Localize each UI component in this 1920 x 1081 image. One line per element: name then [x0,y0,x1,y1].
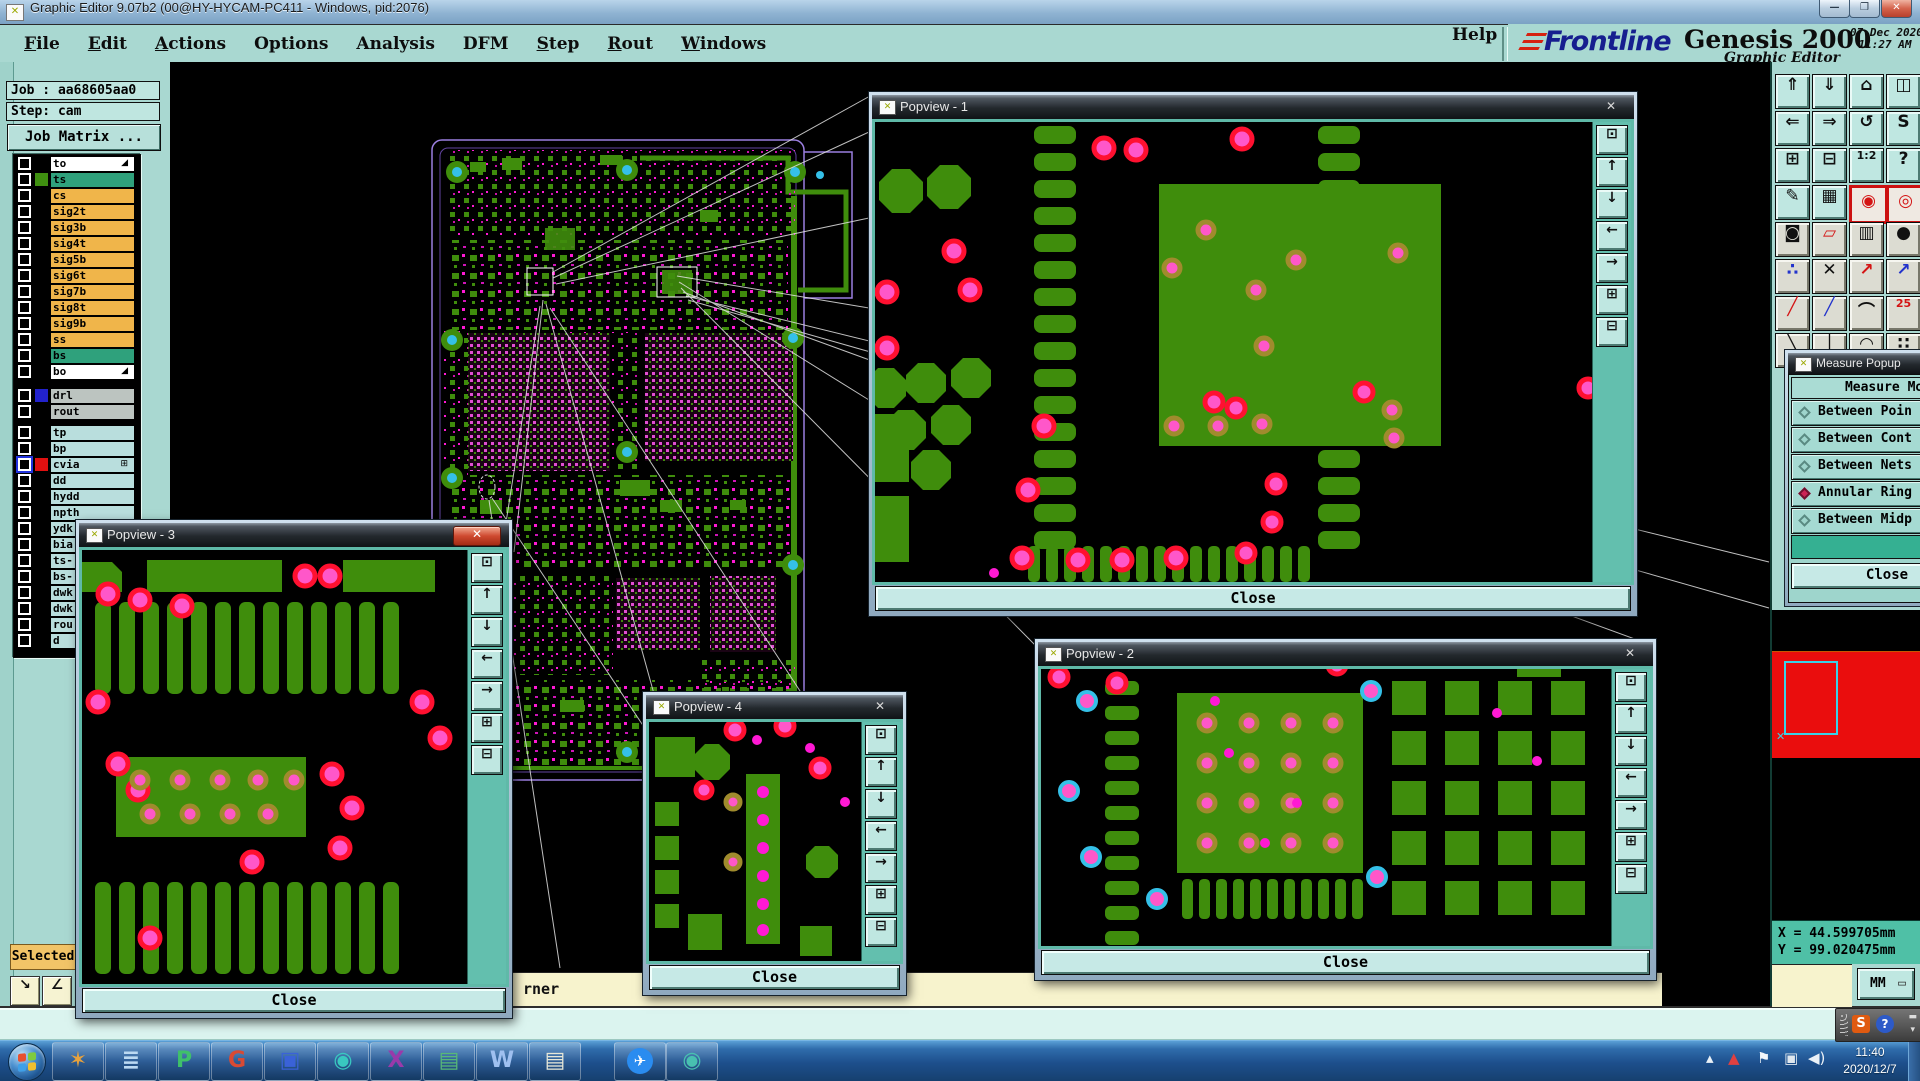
measure-option-between-poin[interactable]: Between Poin [1791,400,1920,426]
pan-left-button[interactable]: ⇐ [1775,111,1810,146]
line-red-button[interactable]: ╱ [1775,296,1810,331]
layer-color-swatch[interactable] [35,237,48,250]
layer-name-label[interactable]: hydd [51,490,134,504]
layer-name-label[interactable]: sig2t [51,205,134,219]
ime-minimize-icon[interactable]: ▬▾ [1908,1011,1917,1037]
pan-left-button[interactable]: ← [865,821,897,851]
popview-icon: ✕ [879,100,896,115]
units-spacer [1772,964,1852,1007]
cursor-coordinates: X = 44.599705mm Y = 99.020475mm [1772,920,1920,964]
sidebar-edge [0,62,14,1006]
overview-origin-marker: ✕ [1776,730,1785,743]
taskbar-genesis-g-icon[interactable]: G [211,1042,263,1081]
popview-1-side-toolbar: ⊡↑↓←→⊞⊟ [1592,122,1631,582]
datetime-display: 07 Dec 202011:27 AM [1850,27,1920,51]
layer-row-hydd: hydd [14,490,138,504]
window-title: Graphic Editor 9.07b2 (00@HY-HYCAM-PC411… [30,0,429,24]
popview-4-side-toolbar: ⊡↑↓←→⊞⊟ [861,722,900,961]
measure-popup-title: Measure Popup [1816,353,1901,374]
layer-color-swatch[interactable] [35,389,48,402]
layer-name-label[interactable]: cs [51,189,134,203]
step-label: Step: cam [6,102,160,121]
layer-color-swatch[interactable] [35,586,48,599]
layer-color-swatch[interactable] [35,365,48,378]
flash-mode-button[interactable]: ◙ [1775,222,1810,257]
taskbar-dingtalk-icon[interactable]: ✈ [614,1042,666,1081]
menu-options[interactable]: Options [254,34,328,54]
delete-button[interactable]: ✕ [1812,259,1847,294]
polygon-mode-button[interactable]: ▱ [1812,222,1847,257]
popview-1-window[interactable]: ✕ Popview - 1 ✕ [869,92,1637,616]
layer-name-label[interactable]: sig8t [51,301,134,315]
layer-color-swatch[interactable] [35,522,48,535]
popview-2-titlebar[interactable]: ✕ Popview - 2 ✕ [1038,642,1653,666]
menu-step[interactable]: Step [537,34,580,54]
layer-row-ts: ts [14,173,138,187]
layer-visibility-checkbox[interactable] [18,365,31,378]
pan-up-button[interactable]: ↑ [1615,704,1647,734]
pan-left-button[interactable]: ← [1596,221,1628,251]
menu-dfm[interactable]: DFM [463,34,509,54]
job-matrix-button[interactable]: Job Matrix ... [7,124,161,151]
frontline-logo: Frontline [1544,26,1671,57]
pan-up-button[interactable]: ↑ [471,585,503,615]
layer-color-swatch[interactable] [35,602,48,615]
layer-row-sig2t: sig2t [14,205,138,219]
layer-visibility-checkbox[interactable] [18,317,31,330]
layer-visibility-checkbox[interactable] [18,506,31,519]
layer-visibility-checkbox[interactable] [18,522,31,535]
popview-1-close-icon[interactable]: ✕ [1596,99,1626,115]
pan-down-button[interactable]: ↓ [471,617,503,647]
layer-row-bo: bo◢ [14,365,138,379]
popview-4-title: Popview - 4 [674,695,742,719]
layer-row-cs: cs [14,189,138,203]
pan-left-button[interactable]: ← [1615,768,1647,798]
taskbar-save-icon[interactable]: ▣ [264,1042,316,1081]
popview-icon: ✕ [653,700,670,715]
grid-button[interactable]: ▦ [1812,185,1847,220]
popview-2-title: Popview - 2 [1066,642,1134,666]
layer-visibility-checkbox[interactable] [18,349,31,362]
duplicate-view-button[interactable]: ⊡ [1596,125,1628,155]
layer-visibility-checkbox[interactable] [18,285,31,298]
layer-color-swatch[interactable] [35,253,48,266]
undo-zoom-button[interactable]: ↺ [1849,111,1884,146]
layer-row-cvia: cvia⊞ [14,458,138,472]
pan-right-button[interactable]: → [865,853,897,883]
net-highlight-button[interactable]: ◉ [1849,185,1888,224]
layer-row-npth: npth [14,506,138,520]
layer-row-drl: drl [14,389,138,403]
layer-color-swatch[interactable] [35,301,48,314]
zoom-in-button[interactable]: ⊟ [1812,148,1847,183]
layer-name-label[interactable]: tp [51,426,134,440]
ime-icon[interactable]: S [1852,1015,1870,1033]
coord-y: Y = 99.020475mm [1778,942,1920,959]
layer-visibility-checkbox[interactable] [18,205,31,218]
layer-name-label[interactable]: rout [51,405,134,419]
layer-visibility-checkbox[interactable] [18,426,31,439]
coord-x: X = 44.599705mm [1778,925,1920,942]
popview-4-close-icon[interactable]: ✕ [865,699,895,715]
layer-color-swatch[interactable] [35,570,48,583]
taskbar-notes-icon[interactable]: ≣ [105,1042,157,1081]
pan-down-button[interactable]: ↓ [1596,189,1628,219]
start-button[interactable] [8,1043,46,1081]
layer-name-label[interactable]: bo◢ [51,365,134,379]
layer-visibility-checkbox[interactable] [18,554,31,567]
prompt-text: rner [523,980,559,998]
maximize-button[interactable]: ❐ [1849,0,1880,18]
layer-color-swatch[interactable] [35,173,48,186]
radio-diamond-icon [1798,460,1811,473]
layer-visibility-checkbox[interactable] [18,389,31,402]
layer-color-swatch[interactable] [35,189,48,202]
layer-name-label[interactable]: ss [51,333,134,347]
layer-visibility-checkbox[interactable] [18,586,31,599]
pan-right-button[interactable]: → [1596,253,1628,283]
overview-pane[interactable]: ✕ [1772,610,1920,920]
job-label: Job : aa68605aa0 [6,81,160,100]
duplicate-view-button[interactable]: ⊡ [1615,672,1647,702]
layer-name-label[interactable]: to◢ [51,157,134,171]
units-button[interactable]: MM▭ [1857,968,1915,1000]
layer-row-to: to◢ [14,157,138,171]
pan-down-button[interactable]: ↓ [1615,736,1647,766]
zoom-fit-button[interactable]: ⊞ [1596,285,1628,315]
layer-name-label[interactable]: sig9b [51,317,134,331]
layer-row-sig6t: sig6t [14,269,138,283]
tools-button[interactable]: ✎ [1775,185,1810,220]
layer-name-label[interactable]: bp [51,442,134,456]
menu-analysis[interactable]: Analysis [356,34,435,54]
measure-option-between-cont[interactable]: Between Cont [1791,427,1920,453]
show-desktop-button[interactable] [1908,1041,1920,1081]
layer-name-label[interactable]: sig5b [51,253,134,267]
popview-2-art [1041,669,1612,946]
layer-visibility-checkbox[interactable] [18,173,31,186]
taskbar-disc-burn-icon[interactable]: ◉ [317,1042,369,1081]
layer-color-swatch[interactable] [35,221,48,234]
tray-volume-icon[interactable]: ◀) [1808,1049,1825,1067]
layer-color-swatch[interactable] [35,458,48,471]
layer-row-ss: ss [14,333,138,347]
layer-color-swatch[interactable] [35,506,48,519]
layer-name-label[interactable]: sig4t [51,237,134,251]
zoom-all-button[interactable]: ⊟ [1615,864,1647,894]
layer-visibility-checkbox[interactable] [18,253,31,266]
taskbar-word-icon[interactable]: W [476,1042,528,1081]
layer-color-swatch[interactable] [35,426,48,439]
layer-row-dd: dd [14,474,138,488]
pan-up-button[interactable]: ↑ [1596,157,1628,187]
layer-visibility-checkbox[interactable] [18,301,31,314]
split-window-button[interactable]: ◫ [1886,74,1920,109]
popview-4-art [649,722,862,961]
layer-visibility-checkbox[interactable] [18,602,31,615]
layer-row-sig4t: sig4t [14,237,138,251]
layer-name-label[interactable]: dd [51,474,134,488]
menu-rout[interactable]: Rout [607,34,653,54]
menu-edit[interactable]: Edit [88,34,127,54]
radio-diamond-icon [1798,406,1811,419]
layer-color-swatch[interactable] [35,554,48,567]
popview-icon: ✕ [1045,647,1062,662]
menu-actions[interactable]: Actions [155,34,226,54]
zoom-fit-button[interactable]: ⊞ [1615,832,1647,862]
measure-popup-close-button[interactable]: Close [1791,563,1920,589]
layer-row-sig5b: sig5b [14,253,138,267]
arc-button[interactable]: ⌒ [1849,296,1884,331]
layer-visibility-checkbox[interactable] [18,634,31,647]
layer-color-swatch[interactable] [35,618,48,631]
frontline-speedlines-icon [1517,33,1548,53]
layer-color-swatch[interactable] [35,538,48,551]
overview-highlight-band: ✕ [1772,651,1920,758]
layer-name-label[interactable]: drl [51,389,134,403]
language-bar[interactable]: S ? ▬▾ [1835,1008,1920,1042]
popview-2-close-icon[interactable]: ✕ [1615,646,1645,662]
layer-row-sig8t: sig8t [14,301,138,315]
menu-windows[interactable]: Windows [681,34,766,54]
popview-1-close-button[interactable]: Close [875,586,1631,611]
layer-color-swatch[interactable] [35,333,48,346]
layer-visibility-checkbox[interactable] [18,221,31,234]
query-button[interactable]: ? [1886,148,1920,183]
layer-visibility-checkbox[interactable] [18,442,31,455]
layer-name-label[interactable]: bs [51,349,134,363]
tray-action-center-icon[interactable]: ⚑ [1757,1049,1770,1067]
menu-file[interactable]: File [24,34,60,54]
overview-zoom-rect[interactable] [1784,661,1838,735]
taskbar-shell-icon[interactable]: ✶ [52,1042,104,1081]
duplicate-view-button[interactable]: ⊡ [471,553,503,583]
line-dual-button[interactable]: ╱ [1812,296,1847,331]
units-window-icon: ▭ [1898,969,1906,999]
selected-status-label: Selected [10,944,76,970]
layer-visibility-checkbox[interactable] [18,269,31,282]
drop-view-button[interactable]: ⇓ [1812,74,1847,109]
zoom-out-button[interactable]: ⊞ [1775,148,1810,183]
zoom-all-button[interactable]: ⊟ [1596,317,1628,347]
layer-name-label[interactable]: sig6t [51,269,134,283]
layer-row-sig3b: sig3b [14,221,138,235]
popview-2-close-button[interactable]: Close [1041,950,1650,975]
measure-popup-titlebar[interactable]: ✕ Measure Popup [1788,353,1920,374]
layer-color-swatch[interactable] [35,269,48,282]
layer-color-swatch[interactable] [35,490,48,503]
popview-1-title: Popview - 1 [900,95,968,119]
layer-row-icon: ◢ [121,366,128,376]
popview-3-title: Popview - 3 [107,523,175,547]
tray-hidden-icons-button[interactable]: ▴ [1706,1049,1714,1067]
measure-popup-body: Measure Mod Between PoinBetween ContBetw… [1788,374,1920,603]
popview-3-viewport[interactable]: ⊡↑↓←→⊞⊟ [79,547,509,987]
layer-name-label[interactable]: npth [51,506,134,520]
main-toolbar: ⇑⇓⌂◫⇐⇒↺S⊞⊟1:2?✎▦◉◎◙▱▥●∴✕↗↗╱╱⌒25╲│◠∷ [1773,74,1920,374]
popview-3-window[interactable]: ✕ Popview - 3 ✕ ⊡↑↓←→⊞ [76,520,512,1018]
layer-visibility-checkbox[interactable] [18,570,31,583]
taskbar: ✶≣PG▣◉X▤W▤✈◉ ▴▲⚑▣◀) 11:402020/12/7 [0,1040,1920,1081]
popview-1-titlebar[interactable]: ✕ Popview - 1 ✕ [872,95,1634,119]
layer-row-bp: bp [14,442,138,456]
menu-help[interactable]: Help [1452,25,1497,63]
app-icon: ✕ [6,4,24,21]
ime-help-icon[interactable]: ? [1876,1015,1894,1033]
measure-mode-header: Measure Mod [1791,377,1920,399]
taskbar-exceed-icon[interactable]: X [370,1042,422,1081]
measure-angle-button[interactable]: ∠ [42,976,72,1006]
brand-panel: Frontline Genesis 2000 Graphic Editor 07… [1508,24,1920,62]
layer-visibility-checkbox[interactable] [18,333,31,346]
tray-antivirus-icon[interactable]: ▲ [1728,1049,1740,1067]
radio-diamond-icon [1798,433,1811,446]
prompt-bar-gap [1662,972,1770,1006]
measure-distance-button[interactable]: ↘ [10,976,40,1006]
popview-4-titlebar[interactable]: ✕ Popview - 4 ✕ [646,695,903,719]
layer-name-label[interactable]: sig7b [51,285,134,299]
taskbar-notepad-icon[interactable]: ▤ [529,1042,581,1081]
layer-name-label[interactable]: ts [51,173,134,187]
minimize-button[interactable]: — [1819,0,1850,18]
popview-icon: ✕ [1795,357,1812,372]
net-compare-button[interactable]: ◎ [1886,185,1920,224]
popview-4-close-button[interactable]: Close [649,965,900,990]
radio-diamond-icon [1798,514,1811,527]
vector-red-button[interactable]: ↗ [1849,259,1884,294]
home-view-button[interactable]: ⌂ [1849,74,1884,109]
layer-row-sig9b: sig9b [14,317,138,331]
zoom-all-button[interactable]: ⊟ [865,917,897,947]
layer-color-swatch[interactable] [35,634,48,647]
zoom-all-button[interactable]: ⊟ [471,745,503,775]
layer-row-tp: tp [14,426,138,440]
layer-color-swatch[interactable] [35,474,48,487]
layer-color-swatch[interactable] [35,349,48,362]
os-titlebar[interactable]: ✕ Graphic Editor 9.07b2 (00@HY-HYCAM-PC4… [0,0,1920,25]
layer-visibility-checkbox[interactable] [18,538,31,551]
layer-row-bs: bs [14,349,138,363]
layer-row-icon: ⊞ [120,459,128,469]
layer-color-swatch[interactable] [35,405,48,418]
layer-visibility-checkbox[interactable] [18,474,31,487]
popview-4-viewport[interactable]: ⊡↑↓←→⊞⊟ [646,719,903,964]
radio-diamond-icon [1798,487,1811,500]
layer-row-rout: rout [14,405,138,419]
popview-3-close-button[interactable]: Close [82,988,506,1013]
measure-ruler-button[interactable]: ▥ [1849,222,1884,257]
layer-row-icon: ◢ [121,158,128,168]
pan-right-button[interactable]: → [1615,800,1647,830]
layer-name-label[interactable]: cvia⊞ [51,458,134,472]
layer-color-swatch[interactable] [35,317,48,330]
popview-1-art [875,122,1593,582]
popview-icon: ✕ [86,528,103,543]
measure-option-between-midp[interactable]: Between Midp [1791,508,1920,534]
popview-3-side-toolbar: ⊡↑↓←→⊞⊟ [467,550,506,984]
measure-option-annular-ring[interactable]: Annular Ring [1791,481,1920,507]
taskbar-disc2-icon[interactable]: ◉ [666,1042,718,1081]
popview-4-window[interactable]: ✕ Popview - 4 ✕ ⊡↑↓←→⊞⊟ Close [643,692,906,995]
layer-visibility-checkbox[interactable] [18,405,31,418]
measure-popup-window[interactable]: ✕ Measure Popup Measure Mod Between Poin… [1785,350,1920,606]
net-points-button[interactable]: ∴ [1775,259,1810,294]
pan-right-button[interactable]: → [471,681,503,711]
serpentine-button[interactable]: S [1886,111,1920,146]
popview-3-art [82,550,468,984]
measure-option-between-nets[interactable]: Between Nets [1791,454,1920,480]
popview-3-close-icon[interactable]: ✕ [453,526,501,546]
duplicate-view-button[interactable]: ⊡ [865,725,897,755]
taskbar-excel-icon[interactable]: ▤ [423,1042,475,1081]
popview-3-titlebar[interactable]: ✕ Popview - 3 ✕ [79,523,509,547]
layer-visibility-checkbox[interactable] [18,237,31,250]
popview-2-viewport[interactable]: ⊡↑↓←→⊞⊟ [1038,666,1653,949]
layer-color-swatch[interactable] [35,285,48,298]
zoom-fit-button[interactable]: ⊞ [471,713,503,743]
popview-2-side-toolbar: ⊡↑↓←→⊞⊟ [1611,669,1650,946]
pan-right-button[interactable]: ⇒ [1812,111,1847,146]
layer-visibility-checkbox[interactable] [18,618,31,631]
pan-up-button[interactable]: ↑ [865,757,897,787]
pan-down-button[interactable]: ↓ [865,789,897,819]
zoom-fit-button[interactable]: ⊞ [865,885,897,915]
layer-visibility-checkbox[interactable] [18,458,31,471]
layer-visibility-checkbox[interactable] [18,490,31,503]
taskbar-genesis-p-icon[interactable]: P [158,1042,210,1081]
pad-select-button[interactable]: ● [1886,222,1920,257]
pan-left-button[interactable]: ← [471,649,503,679]
vector-blue-button[interactable]: ↗ [1886,259,1920,294]
language-bar-grip[interactable] [1840,1014,1848,1036]
layer-visibility-checkbox[interactable] [18,189,31,202]
layer-color-swatch[interactable] [35,157,48,170]
layer-visibility-checkbox[interactable] [18,157,31,170]
measure-popup-spacer [1791,535,1920,559]
zoom-scale-button[interactable]: 1:2 [1849,148,1884,183]
close-button[interactable]: ✕ [1881,0,1912,18]
pair-digits-button[interactable]: 25 [1886,296,1920,331]
tray-network-icon[interactable]: ▣ [1784,1049,1798,1067]
layer-name-label[interactable]: sig3b [51,221,134,235]
layer-color-swatch[interactable] [35,442,48,455]
taskbar-clock[interactable]: 11:402020/12/7 [1836,1044,1904,1078]
popview-2-window[interactable]: ✕ Popview - 2 ✕ ⊡↑↓←→⊞⊟ Close [1035,639,1656,980]
paste-view-button[interactable]: ⇑ [1775,74,1810,109]
popview-1-viewport[interactable]: ⊡↑↓←→⊞⊟ [872,119,1634,585]
layer-row-sig7b: sig7b [14,285,138,299]
layer-color-swatch[interactable] [35,205,48,218]
